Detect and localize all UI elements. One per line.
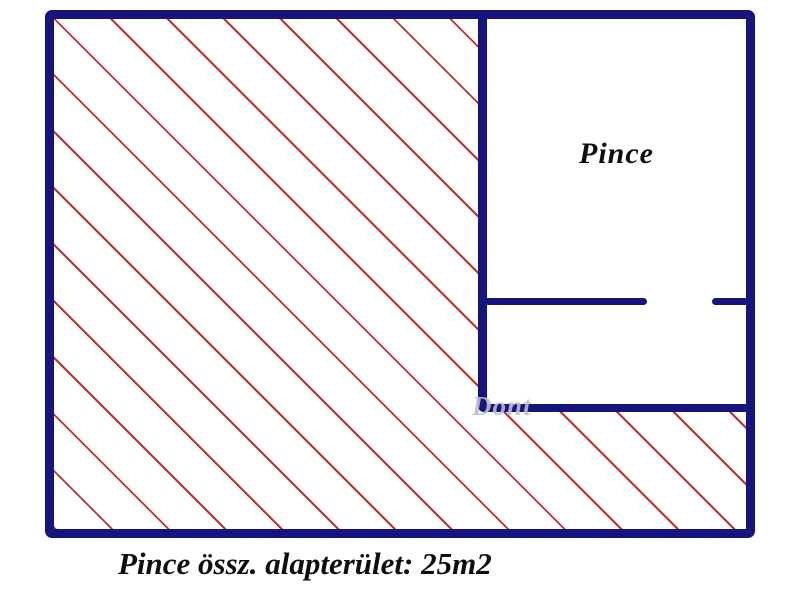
- door-opening: [647, 298, 712, 305]
- room-label: Pince: [487, 137, 746, 171]
- watermark-text: Dont: [472, 391, 532, 422]
- partition-wall-left: [487, 298, 647, 305]
- pince-room: [478, 19, 746, 412]
- partition-wall-right: [712, 298, 746, 305]
- floor-plan-canvas: Pince Dont Pince össz. alapterület: 25m2: [0, 0, 800, 600]
- plan-outline-hatched-area: Pince Dont: [45, 10, 755, 538]
- area-caption: Pince össz. alapterület: 25m2: [118, 546, 492, 582]
